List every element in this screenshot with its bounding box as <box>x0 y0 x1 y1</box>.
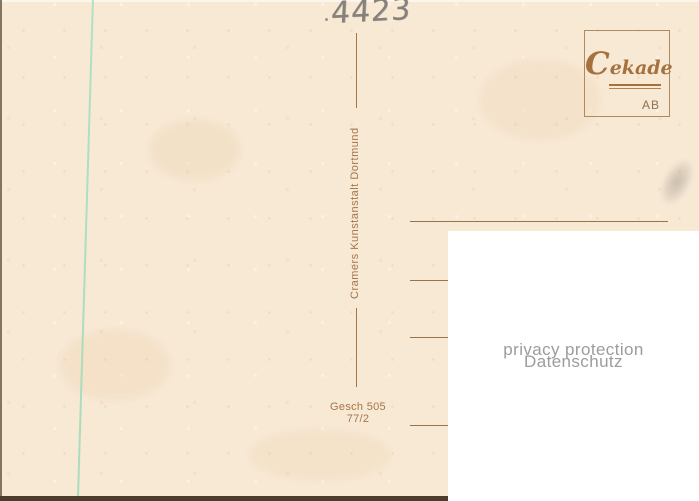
divider-line-top <box>356 33 357 108</box>
order-reference: Gesch 505 77/2 <box>307 402 409 425</box>
privacy-overlay-text: privacy protection Datenschutz <box>448 341 699 370</box>
postcard-back-scan: 4423 Cramers Kunstanstalt Dortmund Gesch… <box>0 0 699 501</box>
publisher-logo: Cekade <box>585 49 669 83</box>
pencil-smudge <box>654 155 699 210</box>
handwritten-postal-code: 4423 <box>330 0 412 31</box>
logo-underline <box>609 84 661 89</box>
paper-stain <box>480 60 600 140</box>
scan-left-edge <box>0 0 2 501</box>
paper-stain <box>60 330 170 400</box>
order-number: 77/2 <box>307 414 409 426</box>
pencil-dot <box>325 18 328 21</box>
stamp-box: Cekade AB <box>584 30 670 117</box>
paper-stain <box>150 120 240 180</box>
postal-sorting-line <box>77 0 94 501</box>
stamp-box-initials: AB <box>642 98 660 112</box>
privacy-overlay: privacy protection Datenschutz <box>448 231 699 501</box>
publisher-vertical-text: Cramers Kunstanstalt Dortmund <box>349 115 362 299</box>
paper-stain <box>250 430 390 480</box>
order-code: Gesch 505 <box>307 402 409 414</box>
address-line <box>410 221 668 222</box>
divider-line-bottom <box>356 308 357 387</box>
privacy-line-german: Datenschutz <box>448 353 699 370</box>
